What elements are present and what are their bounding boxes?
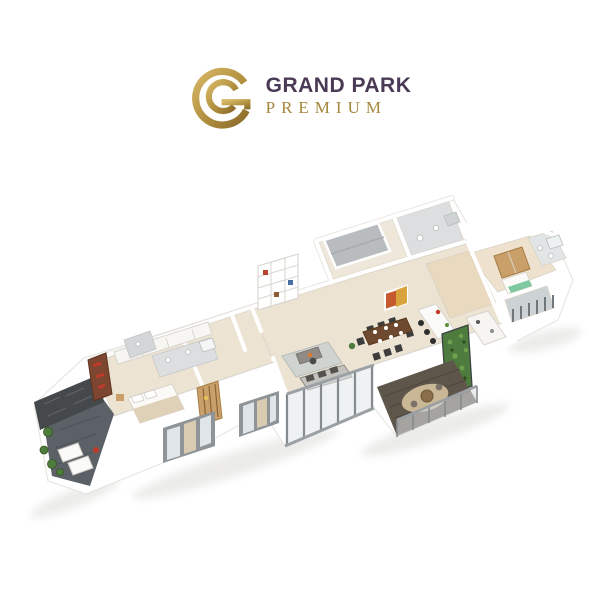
balcony-table [421, 390, 433, 402]
page: GRAND PARK PREMIUM [0, 0, 600, 600]
lamp-glow [204, 396, 208, 400]
nightstand [116, 394, 124, 401]
plant-pot [349, 343, 355, 349]
red-plant [93, 447, 99, 453]
floorplan-3d-render [0, 0, 600, 600]
sink [476, 320, 480, 324]
island-fruit [445, 323, 449, 327]
island-vase [436, 310, 440, 314]
coffee-table [310, 358, 317, 365]
stove [490, 329, 494, 333]
fireplace-flame [308, 353, 312, 357]
balcony-chair [436, 384, 443, 391]
balcony-chair [411, 401, 418, 408]
